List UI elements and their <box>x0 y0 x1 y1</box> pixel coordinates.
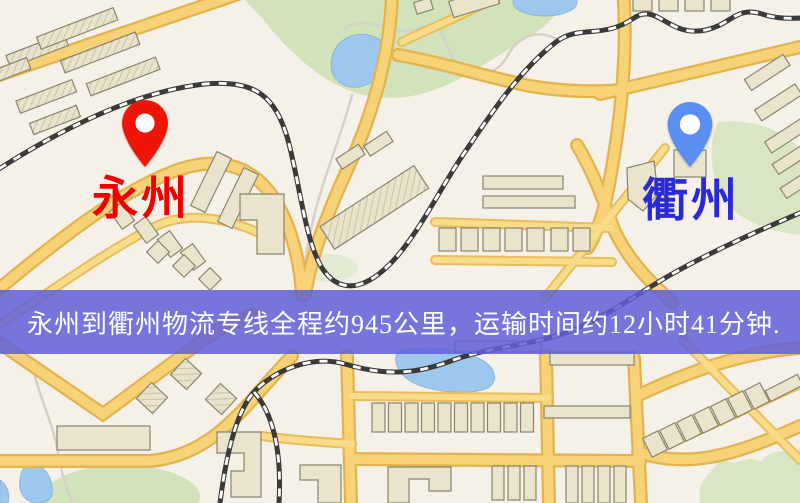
origin-pin-icon[interactable] <box>120 98 170 169</box>
origin-city-label: 永州 <box>92 176 190 222</box>
route-info-banner: 永州到衢州物流专线全程约945公里，运输时间约12小时41分钟. <box>0 290 800 354</box>
route-info-text: 永州到衢州物流专线全程约945公里，运输时间约12小时41分钟. <box>0 304 781 341</box>
destination-pin-icon[interactable] <box>664 100 716 169</box>
origin-pin-shape <box>122 100 168 167</box>
destination-city-label: 衢州 <box>642 178 740 224</box>
map-background <box>0 0 800 503</box>
map-viewport: 永州 衢州 永州到衢州物流专线全程约945公里，运输时间约12小时41分钟. <box>0 0 800 503</box>
